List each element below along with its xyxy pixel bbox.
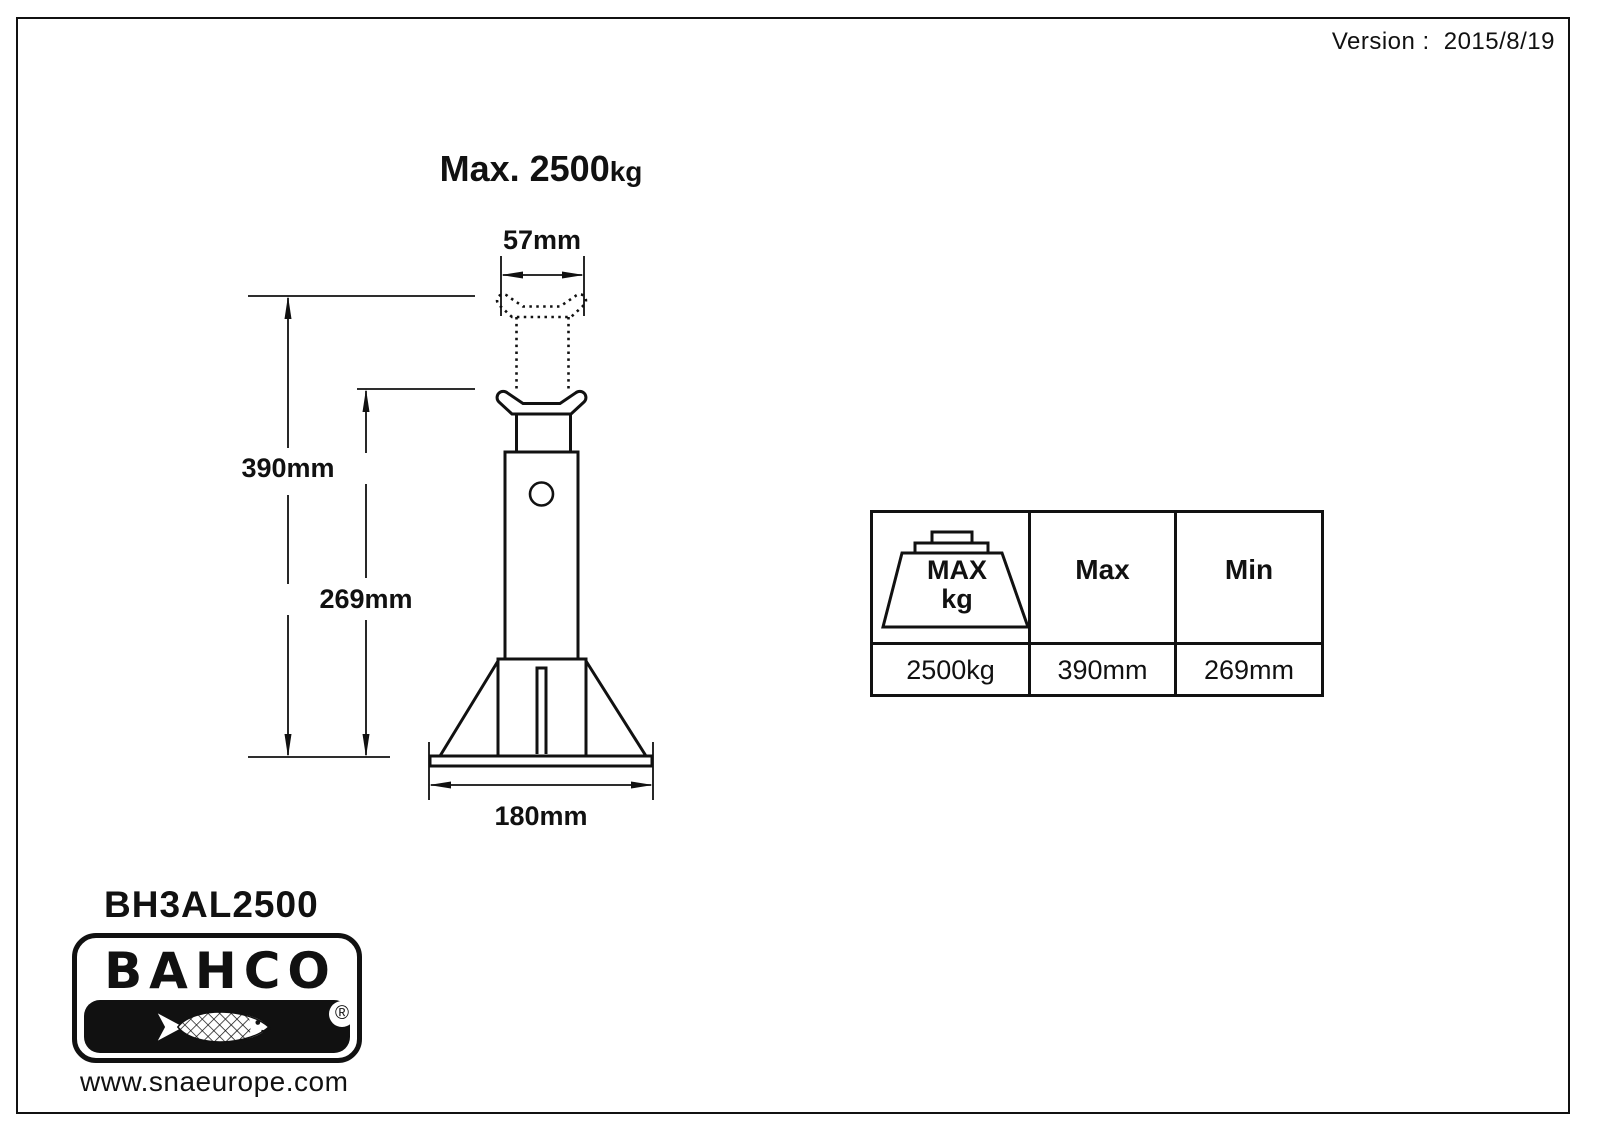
bahco-logo: BAHCO ®: [72, 933, 362, 1063]
base-body: [498, 659, 586, 756]
model-code: BH3AL2500: [104, 884, 319, 926]
table-header-max: Max: [1031, 554, 1174, 586]
saddle: [497, 391, 586, 414]
registered-trademark-mark: ®: [329, 1001, 355, 1027]
dimension-lines: [248, 253, 653, 800]
pin-hole: [530, 483, 553, 506]
table-value-min-height: 269mm: [1177, 655, 1321, 686]
table-value-max-height: 390mm: [1031, 655, 1174, 686]
fish-icon: [150, 1007, 282, 1047]
dimension-label-top-width: 57mm: [462, 225, 622, 256]
base-gussets: [440, 661, 646, 756]
spec-table: MAX kg Max Min 2500kg 390mm 269mm: [870, 510, 1324, 697]
table-value-capacity: 2500kg: [873, 655, 1028, 686]
weight-icon-label-kg: kg: [883, 584, 1031, 615]
table-header-min: Min: [1177, 554, 1321, 586]
table-divider: [873, 642, 1321, 645]
saddle-neck: [517, 414, 571, 452]
dimension-label-max-height: 390mm: [208, 453, 368, 484]
base-plate: [430, 756, 652, 766]
brand-name: BAHCO: [77, 942, 357, 1000]
base-slot: [537, 668, 546, 754]
brand-bar: [84, 1000, 350, 1053]
weight-icon-label-max: MAX: [883, 555, 1031, 586]
dimension-label-min-height: 269mm: [286, 584, 446, 615]
extended-position-dotted-outline: [497, 294, 586, 391]
dimension-label-base-width: 180mm: [461, 801, 621, 832]
jack-stand-outline: [430, 391, 652, 766]
spec-sheet-page: Version :2015/8/19 Max. 2500kg: [0, 0, 1600, 1131]
website-url: www.snaeurope.com: [80, 1066, 348, 1098]
